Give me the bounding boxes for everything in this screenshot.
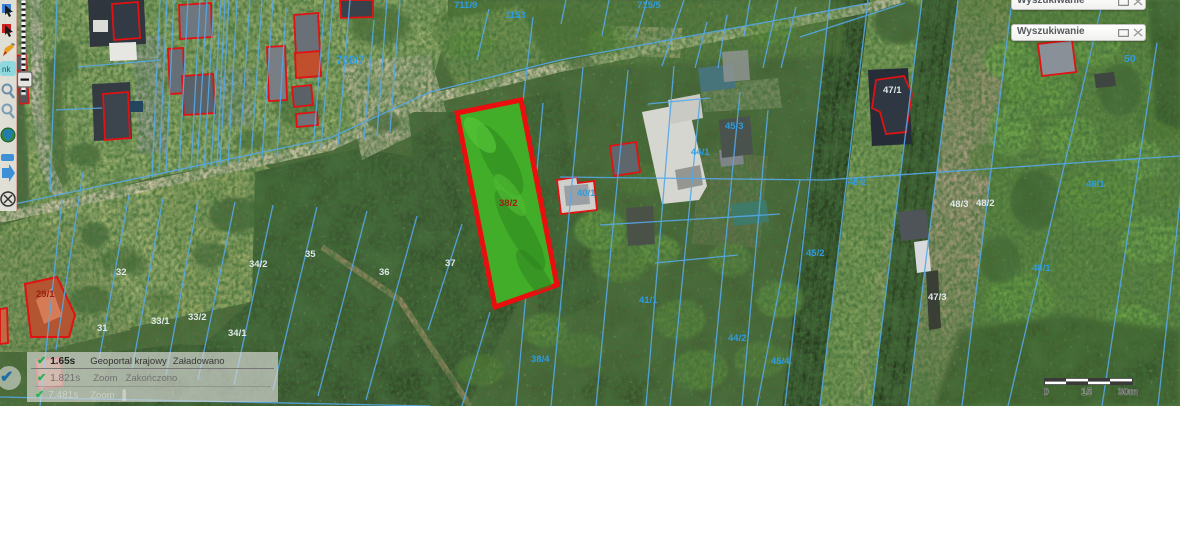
svg-text:48/2: 48/2: [976, 198, 995, 209]
svg-text:44/2: 44/2: [728, 333, 747, 344]
svg-text:708/7: 708/7: [336, 55, 365, 67]
svg-text:44/1: 44/1: [691, 147, 710, 158]
svg-text:37: 37: [445, 258, 456, 269]
svg-text:34/1: 34/1: [228, 328, 247, 339]
svg-text:36: 36: [379, 267, 390, 278]
svg-text:32: 32: [116, 267, 127, 278]
svg-text:46/1: 46/1: [1086, 179, 1105, 190]
svg-text:33/2: 33/2: [188, 312, 207, 323]
svg-text:48/3: 48/3: [950, 199, 969, 210]
svg-text:1153: 1153: [505, 10, 526, 21]
svg-text:48/2: 48/2: [848, 177, 867, 188]
svg-text:47/3: 47/3: [928, 292, 947, 303]
svg-text:30m: 30m: [1118, 387, 1138, 398]
svg-text:48/1: 48/1: [1032, 263, 1051, 274]
svg-text:38/4: 38/4: [531, 354, 550, 365]
svg-text:45/4: 45/4: [771, 356, 790, 367]
svg-text:40/1: 40/1: [577, 188, 596, 199]
svg-text:29/1: 29/1: [36, 289, 55, 300]
svg-text:50: 50: [1124, 53, 1136, 65]
svg-text:33/1: 33/1: [151, 316, 170, 327]
svg-text:38/2: 38/2: [499, 198, 518, 209]
svg-text:35: 35: [305, 249, 316, 260]
svg-text:45/2: 45/2: [806, 248, 825, 259]
svg-text:34/2: 34/2: [249, 259, 268, 270]
svg-text:nk: nk: [2, 65, 11, 74]
svg-text:47/1: 47/1: [883, 85, 902, 96]
svg-text:45/3: 45/3: [725, 121, 744, 132]
svg-text:715/5: 715/5: [637, 0, 661, 11]
svg-text:711/9: 711/9: [454, 0, 477, 11]
svg-text:0: 0: [1044, 387, 1049, 398]
svg-text:15: 15: [1081, 387, 1093, 398]
svg-text:41/1: 41/1: [639, 295, 658, 306]
svg-text:31: 31: [97, 323, 108, 334]
